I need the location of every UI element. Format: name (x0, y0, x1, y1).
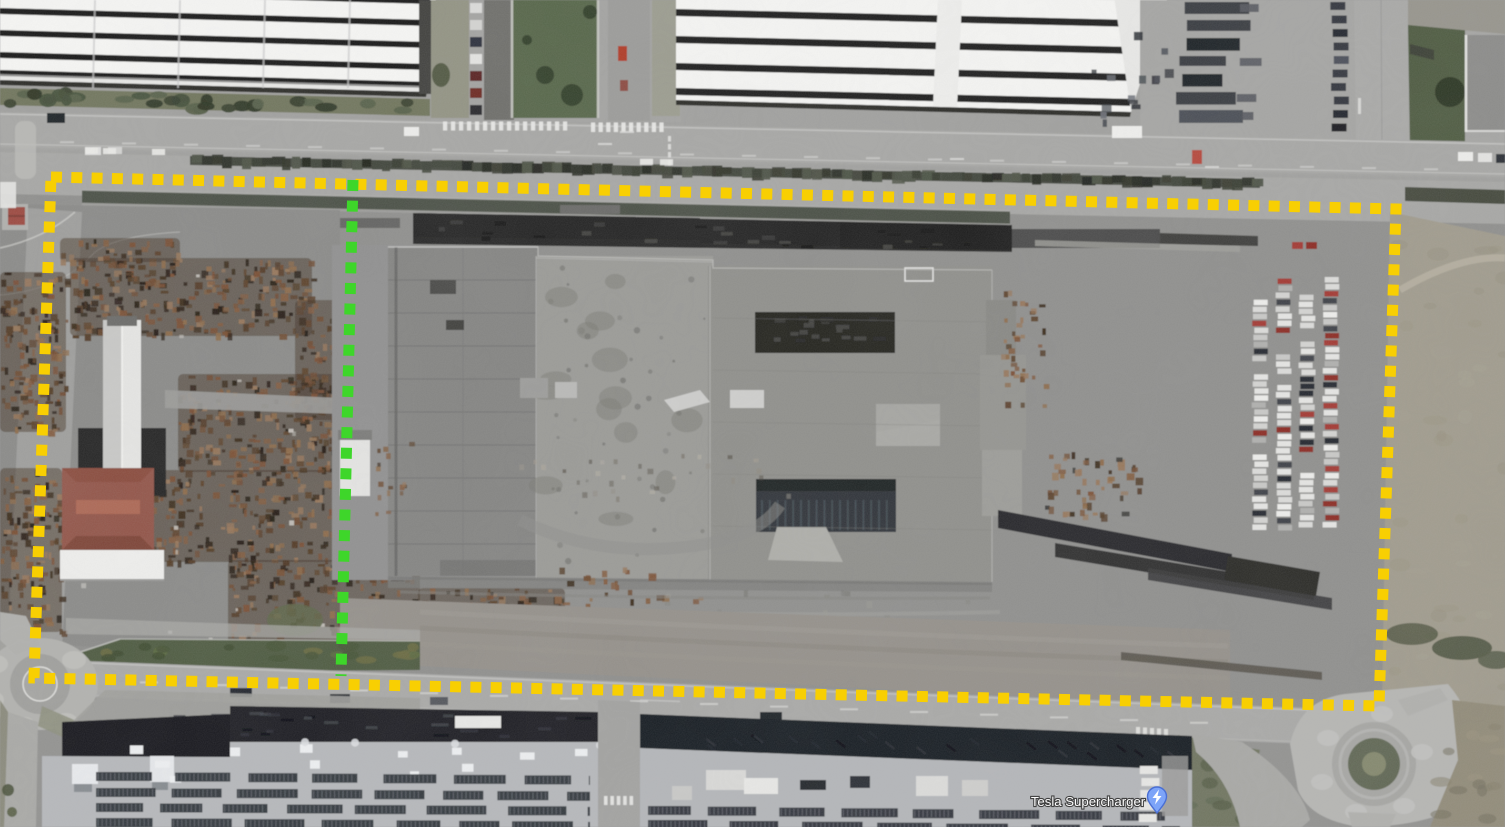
svg-text:Tesla Supercharger: Tesla Supercharger (1031, 794, 1146, 809)
